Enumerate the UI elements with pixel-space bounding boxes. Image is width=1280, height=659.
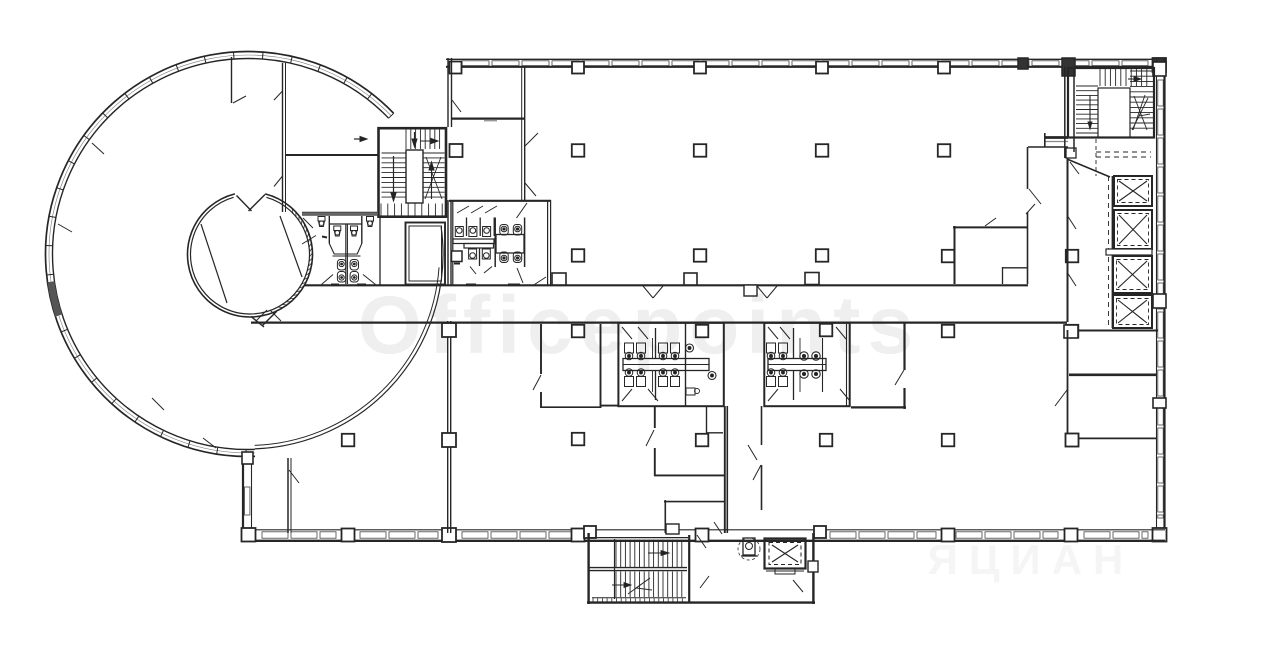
svg-text:ЯЦИАН: ЯЦИАН	[928, 536, 1135, 583]
